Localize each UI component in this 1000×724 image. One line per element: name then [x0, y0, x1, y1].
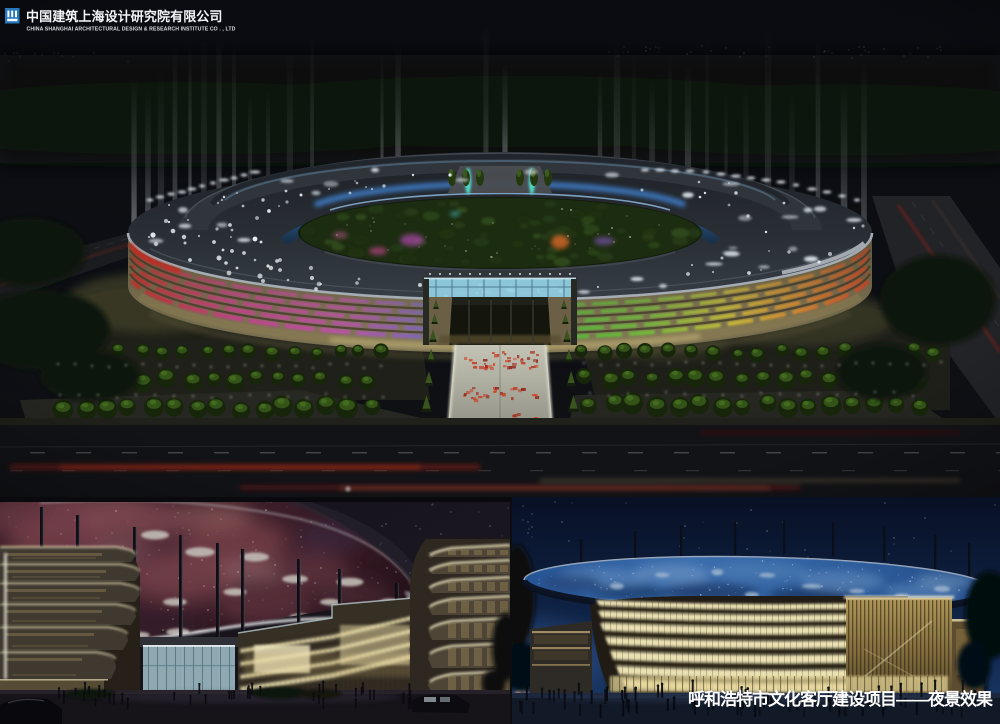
svg-text:CHINA SHANGHAI ARCHITECTURAL D: CHINA SHANGHAI ARCHITECTURAL DESIGN & RE… [27, 27, 236, 33]
svg-text:中国建筑上海设计研究院有限公司: 中国建筑上海设计研究院有限公司 [26, 9, 223, 24]
svg-text:呼和浩特市文化客厅建设项目——夜景效果: 呼和浩特市文化客厅建设项目——夜景效果 [688, 689, 993, 709]
